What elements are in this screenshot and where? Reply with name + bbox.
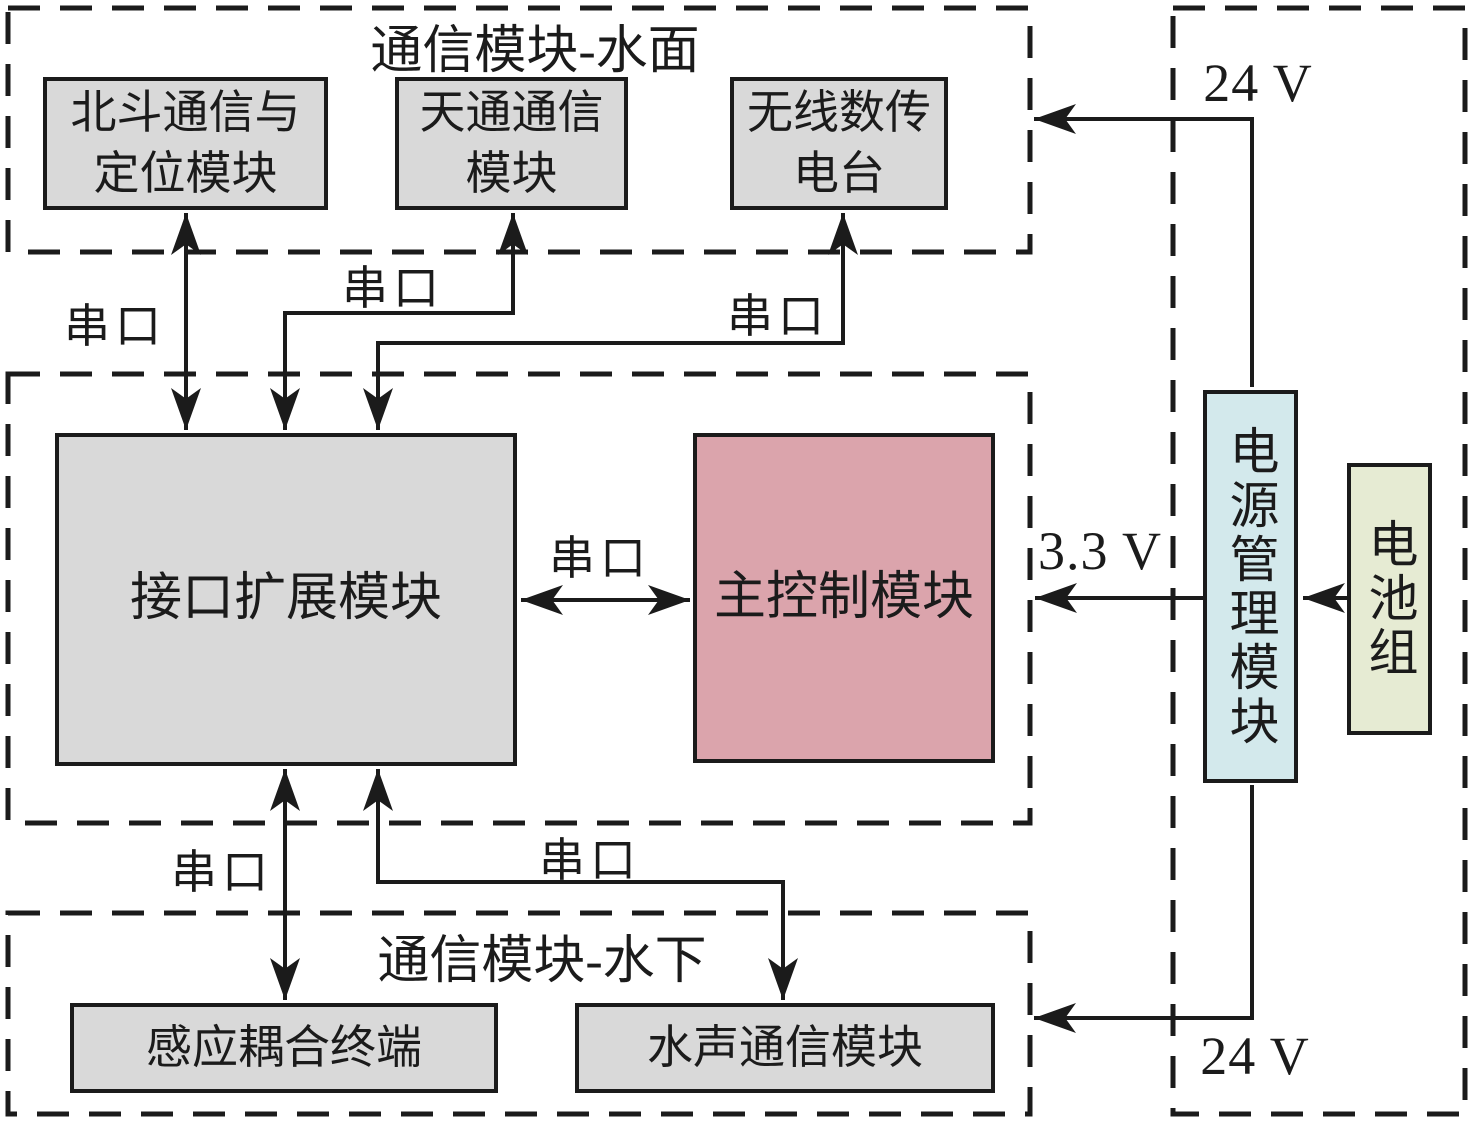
module-beidou: 北斗通信与 定位模块 [43, 77, 328, 210]
serial-label-beidou: 串口 [55, 290, 175, 356]
module-radio-line2: 电台 [793, 144, 885, 205]
voltage-label-24v-top: 24 V [1178, 52, 1338, 114]
module-tiantong-line1: 天通通信 [420, 83, 604, 144]
module-interface-expansion: 接口扩展模块 [55, 433, 517, 766]
module-induction-coupling: 感应耦合终端 [70, 1003, 498, 1093]
block-diagram: 通信模块-水面 通信模块-水下 北斗通信与 定位模块 天通通信 模块 无线数传 … [0, 0, 1476, 1126]
module-tiantong-line2: 模块 [466, 144, 558, 205]
module-radio-line1: 无线数传 [747, 83, 931, 144]
module-beidou-line1: 北斗通信与 [71, 83, 301, 144]
module-acoustic-comm: 水声通信模块 [575, 1003, 995, 1093]
serial-label-acoustic: 串口 [530, 824, 650, 890]
module-battery-pack: 电池组 [1347, 463, 1432, 735]
serial-label-radio: 串口 [718, 280, 838, 346]
voltage-label-33v: 3.3 V [1020, 520, 1180, 582]
power-24v-bottom-connector [1034, 785, 1252, 1018]
serial-label-main: 串口 [540, 522, 660, 588]
voltage-label-24v-bottom: 24 V [1175, 1025, 1335, 1087]
serial-label-induction: 串口 [162, 836, 282, 902]
module-main-control: 主控制模块 [693, 433, 995, 763]
module-radio: 无线数传 电台 [730, 77, 948, 210]
power-24v-top-connector [1034, 119, 1252, 387]
serial-label-tiantong: 串口 [333, 252, 453, 318]
tiantong-serial-connector [285, 213, 513, 430]
module-tiantong: 天通通信 模块 [395, 77, 628, 210]
module-power-management: 电源管理模块 [1203, 390, 1298, 783]
surface-group-title: 通信模块-水面 [285, 8, 785, 83]
underwater-group-title: 通信模块-水下 [292, 918, 792, 993]
module-beidou-line2: 定位模块 [94, 144, 278, 205]
